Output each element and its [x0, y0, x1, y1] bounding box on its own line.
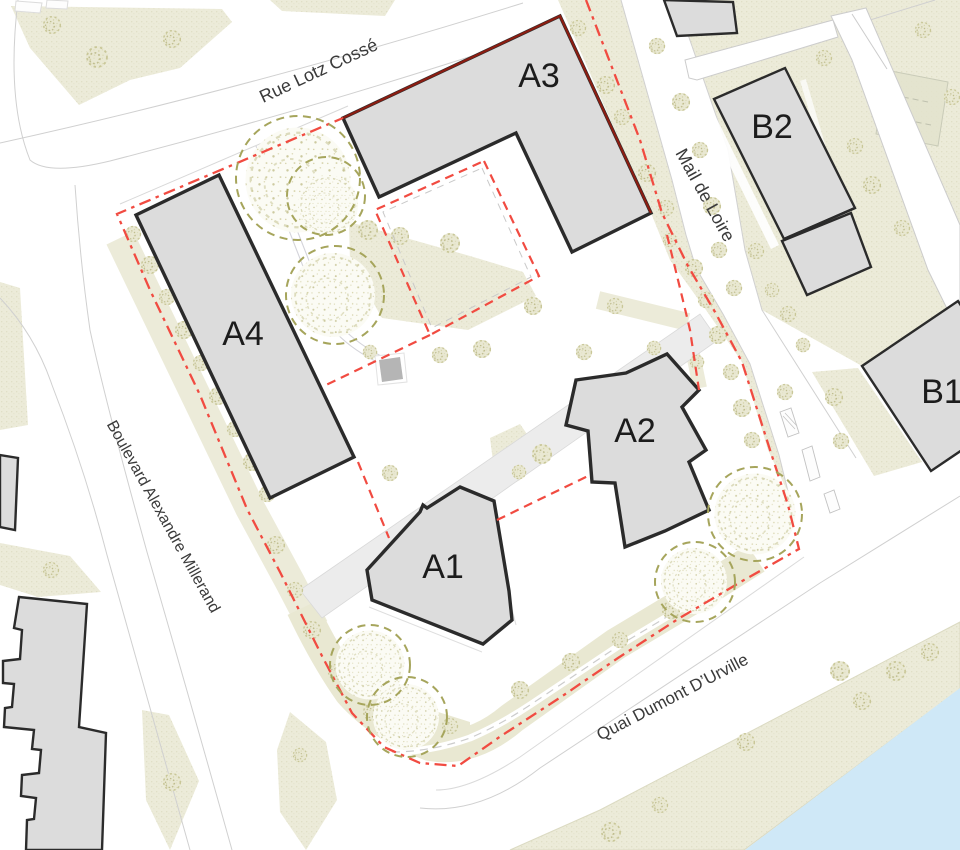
svg-text:A2: A2: [614, 412, 656, 450]
svg-text:A1: A1: [422, 548, 464, 586]
svg-text:A3: A3: [518, 57, 560, 95]
svg-text:B1: B1: [921, 373, 960, 411]
svg-text:B2: B2: [751, 108, 793, 146]
svg-text:A4: A4: [222, 315, 264, 353]
